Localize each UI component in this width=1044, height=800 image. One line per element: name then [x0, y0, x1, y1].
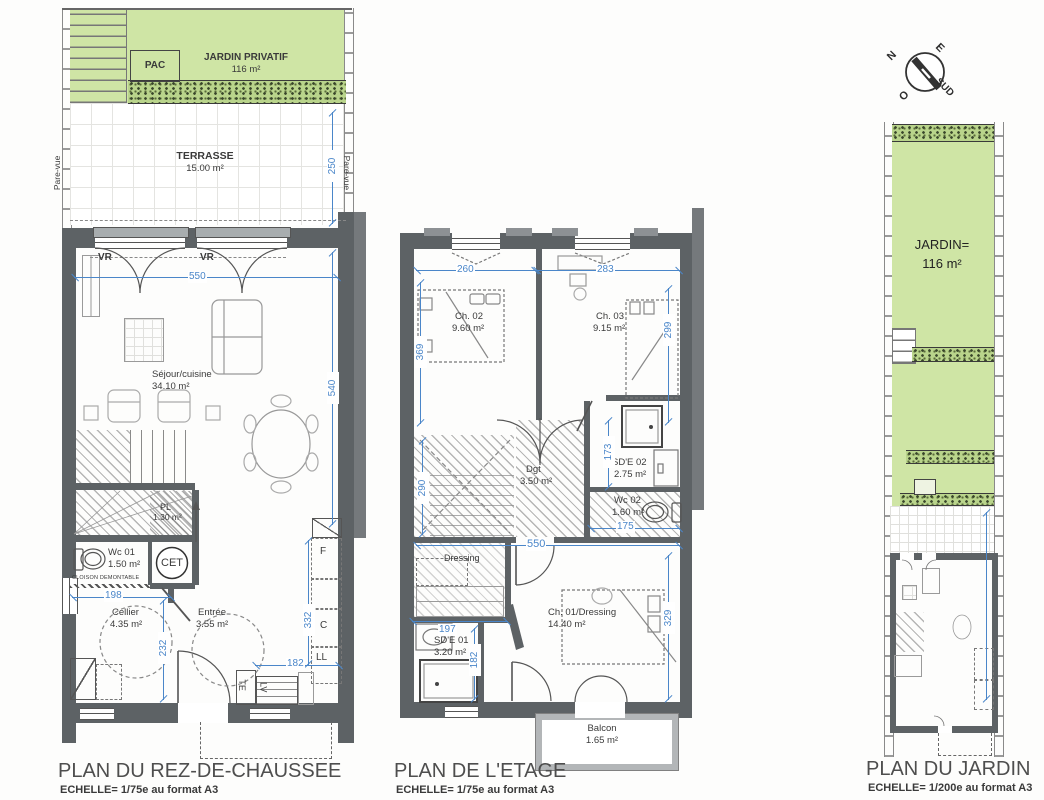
gf-wall-wc-cet [148, 542, 152, 585]
et-wall-dressing-right [505, 543, 511, 619]
jd-terrasse-area [890, 506, 994, 553]
jd-hedge-top [892, 124, 994, 142]
et-dim-197-line [412, 621, 508, 622]
et-scale: ECHELLE= 1/75e au format A3 [396, 784, 554, 796]
et-ch01-area: 14.40 m² [548, 620, 586, 631]
et-wall-sde02-top [606, 395, 692, 401]
gf-cellier-label: Cellier [112, 608, 139, 619]
et-wall-corridor-b [554, 537, 692, 543]
gf-scale: ECHELLE= 1/75e au format A3 [60, 784, 218, 796]
gf-cuisiniere-label: C [320, 620, 327, 632]
gf-toilet [74, 549, 105, 570]
et-wall-corridor-a [400, 537, 516, 543]
gf-garden-stair [70, 10, 127, 103]
gf-sofa [212, 300, 262, 374]
gf-pl-area: 1.30 m² [153, 513, 182, 523]
gf-cellier-dashed-appliance [96, 664, 122, 700]
gf-vr-label-1: VR [98, 252, 112, 264]
et-stair-treads [430, 470, 514, 536]
et-title: PLAN DE L'ETAGE [394, 760, 566, 783]
gf-door-arc-win1-right [140, 248, 185, 293]
gf-cellier-area: 4.35 m² [110, 620, 142, 631]
jd-house-opening-2 [922, 553, 936, 560]
gf-wall-top-c [287, 228, 340, 248]
et-ch03-label: Ch. 03 [596, 312, 624, 323]
et-wall-dressing-bottom [400, 617, 512, 623]
gf-sideboard [82, 255, 100, 317]
gf-te-label: TE [237, 679, 247, 691]
gf-entrance-opening [178, 703, 228, 723]
gf-dining-table [244, 395, 318, 493]
gf-wall-stair-band [70, 483, 195, 490]
et-dgt-area: 3.50 m² [520, 477, 552, 488]
gf-pac-label: PAC [145, 60, 165, 72]
gf-wall-mid [70, 535, 195, 542]
jd-house-door-opening [938, 726, 952, 733]
et-dim-299-line [668, 288, 669, 423]
gf-stair-run-upper [130, 430, 195, 483]
gf-entree-area: 3.55 m² [196, 620, 228, 631]
jd-mini-entry-arc [934, 716, 944, 726]
jd-porch-dashed [938, 733, 992, 756]
et-window1-opening-dash [452, 253, 500, 264]
et-wall-right [680, 233, 692, 718]
et-balcony-door-opening [575, 702, 625, 718]
gf-wall-stair-right [192, 490, 199, 585]
gf-title: PLAN DU REZ-DE-CHAUSSEE [58, 760, 341, 783]
gf-jardin-label: JARDIN PRIVATIF [193, 52, 299, 64]
gf-dim-540: 540 [327, 372, 339, 404]
jd-mini-table [953, 615, 971, 639]
et-shutter-3 [552, 228, 578, 236]
et-shutter-2 [506, 228, 532, 236]
jd-house-opening-1 [900, 553, 914, 560]
et-vanity-sde02 [654, 450, 678, 486]
gf-cellier-appliance [70, 658, 96, 700]
gf-terrasse-area-label: 15.00 m² [150, 164, 260, 175]
gf-sejour-label: Séjour/cuisine [152, 370, 212, 381]
et-dim-173: 173 [603, 436, 615, 468]
gf-stair-winder-upper [70, 430, 130, 483]
gf-rug [124, 318, 164, 362]
gf-armchairs [84, 390, 220, 422]
gf-cloison-partition [70, 584, 150, 588]
et-window-2 [575, 238, 630, 250]
gf-lavelinge-label: LL [316, 652, 327, 664]
gf-pare-vue-left: Pare-vue [53, 145, 63, 201]
et-wall-sde02-left [584, 401, 590, 541]
et-wc02-area: 1.60 m² [612, 508, 644, 519]
gf-wall-right-outer [354, 212, 366, 538]
et-dim-369: 369 [415, 336, 427, 368]
et-sde01-label: SD'E 01 [434, 636, 469, 647]
jd-mini-rug [902, 585, 917, 600]
gf-sink-box [298, 672, 314, 705]
et-wc02-label: Wc 02 [614, 496, 641, 507]
et-ch02-area: 9.60 m² [452, 324, 484, 335]
jd-mini-sofa [922, 568, 940, 594]
et-dim-197: 197 [438, 624, 457, 636]
jd-jardin-label: JARDIN= [892, 238, 992, 253]
gf-pac-box: PAC [130, 50, 180, 82]
gf-counter-box [311, 578, 342, 610]
gf-lv-label: LV [258, 682, 268, 692]
gf-door-arc-win2-right [242, 248, 287, 293]
et-dim-260: 260 [456, 264, 475, 276]
et-ch01-label: Ch. 01/Dressing [548, 608, 616, 619]
et-dim-550: 550 [526, 538, 546, 551]
gf-cloison-label: CLOISON DEMONTABLE [72, 575, 139, 581]
et-wall-left [400, 233, 414, 718]
et-dim-175: 175 [616, 521, 635, 533]
gf-dim-332: 332 [303, 604, 315, 636]
et-ch03-area: 9.15 m² [593, 324, 625, 335]
jd-mini-kitchen-1 [974, 648, 994, 680]
gf-dim-250: 250 [327, 150, 339, 182]
compass-south-label: SUD [933, 76, 956, 99]
gf-dim-332-line [308, 540, 309, 665]
gf-window-bottom-2 [250, 708, 290, 720]
gf-wc01-label: Wc 01 [108, 548, 135, 559]
jd-pac-box [914, 479, 936, 495]
et-shutter-4 [634, 228, 658, 236]
gf-wc01-area: 1.50 m² [108, 560, 140, 571]
et-dim-550-line [416, 545, 680, 546]
et-sde02-area: 2.75 m² [614, 470, 646, 481]
jd-title: PLAN DU JARDIN [866, 758, 1030, 781]
gf-window-bottom-1 [80, 708, 114, 720]
jd-scale: ECHELLE= 1/200e au format A3 [868, 782, 1032, 794]
et-dgt-label: Dgt [526, 465, 541, 476]
gf-roof-dash-line [70, 220, 346, 221]
et-desk-ch03 [558, 256, 602, 300]
gf-sejour-area: 34.10 m² [152, 382, 190, 393]
et-dressing-label: Dressing [444, 553, 480, 563]
et-dim-260-line [416, 270, 536, 271]
et-ch01-door-arc [512, 662, 551, 701]
et-ch01-chair [592, 588, 612, 604]
et-dim-299: 299 [663, 314, 675, 346]
et-window-bottom [445, 706, 478, 718]
et-balcon-label: Balcon [576, 724, 628, 735]
gf-cellier-door-leaf [162, 588, 190, 621]
gf-kitchen-shelf [312, 518, 342, 538]
et-window-1 [452, 238, 500, 250]
gf-frigo-box [311, 538, 342, 580]
jd-hedge-2 [912, 347, 994, 362]
et-ch02-label: Ch. 02 [455, 312, 483, 323]
jd-garden-area [892, 124, 994, 506]
gf-vr-label-2: VR [200, 252, 214, 264]
gf-pl-label: PL [160, 502, 171, 512]
gf-window-recess-dash [90, 257, 286, 258]
gf-hedge [128, 80, 346, 104]
jd-house-wall-left [890, 553, 896, 733]
gf-dim-232: 232 [158, 632, 170, 664]
et-dim-283: 283 [596, 264, 615, 276]
gf-window-2 [197, 237, 287, 249]
gf-dim-182: 182 [286, 658, 305, 670]
gf-cet-label: CET [157, 557, 187, 570]
jd-mini-kitchen-2 [974, 680, 994, 710]
et-balcon-area: 1.65 m² [576, 736, 628, 747]
et-dim-290: 290 [417, 472, 429, 504]
gf-frigo-label: F [320, 546, 326, 558]
jd-mini-wc [894, 655, 922, 677]
jd-mini-stairs [894, 612, 924, 652]
gf-terrasse-label: TERRASSE [150, 150, 260, 162]
compass-north-label: N [885, 49, 899, 63]
et-dim-182: 182 [469, 644, 481, 676]
et-wall-right-outer [692, 208, 704, 510]
et-sde02-label: SD'E 02 [612, 458, 647, 469]
jd-jardin-area: 116 m² [892, 257, 992, 272]
et-dressing-closet [416, 586, 504, 617]
gf-porch-dashed [200, 722, 332, 759]
gf-entrance-door-arc [178, 651, 230, 703]
compass-west-label: O [897, 89, 912, 104]
gf-dim-550: 550 [188, 271, 207, 283]
jd-blue-guide-line [986, 512, 987, 700]
gf-window-1 [95, 237, 185, 249]
et-balcony-door-arc-left [575, 676, 601, 702]
et-balcony-door-arc-right [601, 676, 627, 702]
compass-east-label: E [933, 41, 947, 55]
et-sde01-area: 3.20 m² [434, 648, 466, 659]
gf-jardin-area: 116 m² [193, 65, 299, 76]
floor-plan-sheet: PAC JARDIN PRIVATIF 116 m² TERRASSE 15.0… [0, 0, 1044, 800]
et-shutter-1 [424, 228, 450, 236]
et-window2-opening-dash [575, 253, 630, 264]
gf-pare-vue-right: Pare-vue [341, 145, 351, 201]
jd-hedge-3 [906, 450, 994, 464]
et-shower-sde02 [622, 406, 662, 447]
gf-dim-198: 198 [104, 590, 123, 602]
et-dim-329: 329 [663, 602, 675, 634]
et-dim-175-line [590, 528, 680, 529]
gf-entree-label: Entrée [198, 608, 226, 619]
